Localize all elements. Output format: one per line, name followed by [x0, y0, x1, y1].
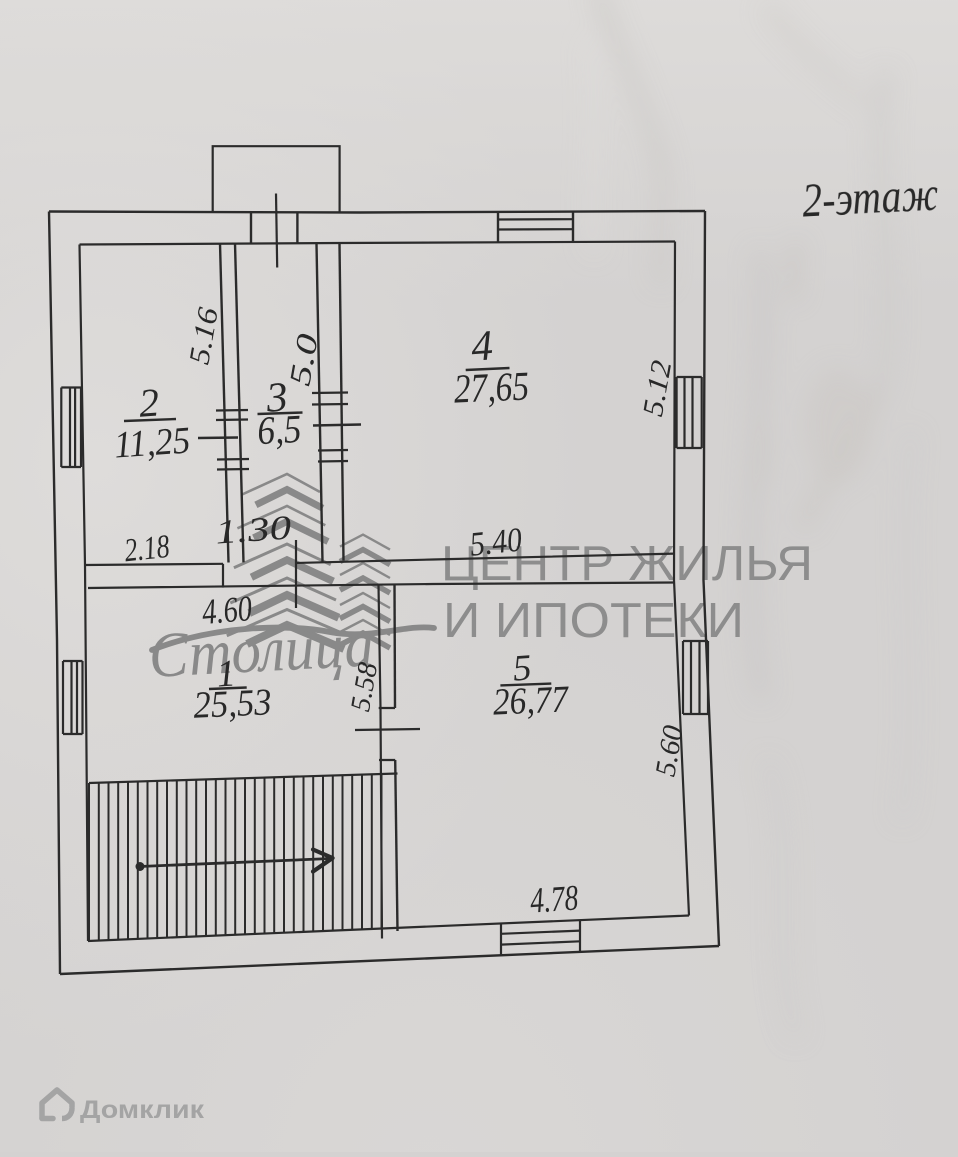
svg-text:4.60: 4.60 [200, 588, 253, 632]
svg-text:Домклик: Домклик [80, 1096, 205, 1124]
svg-text:5.40: 5.40 [468, 521, 524, 563]
svg-text:Столица: Столица [147, 608, 375, 691]
svg-text:2-этаж: 2-этаж [801, 167, 940, 227]
svg-text:25,53: 25,53 [193, 681, 273, 726]
svg-text:6,5: 6,5 [256, 406, 302, 453]
svg-text:11,25: 11,25 [113, 419, 192, 466]
svg-text:2.18: 2.18 [123, 529, 172, 570]
svg-text:1.30: 1.30 [214, 509, 292, 551]
svg-text:4.78: 4.78 [529, 877, 580, 920]
svg-text:26,77: 26,77 [492, 678, 571, 723]
svg-text:2: 2 [138, 379, 161, 425]
svg-text:27,65: 27,65 [453, 362, 530, 411]
